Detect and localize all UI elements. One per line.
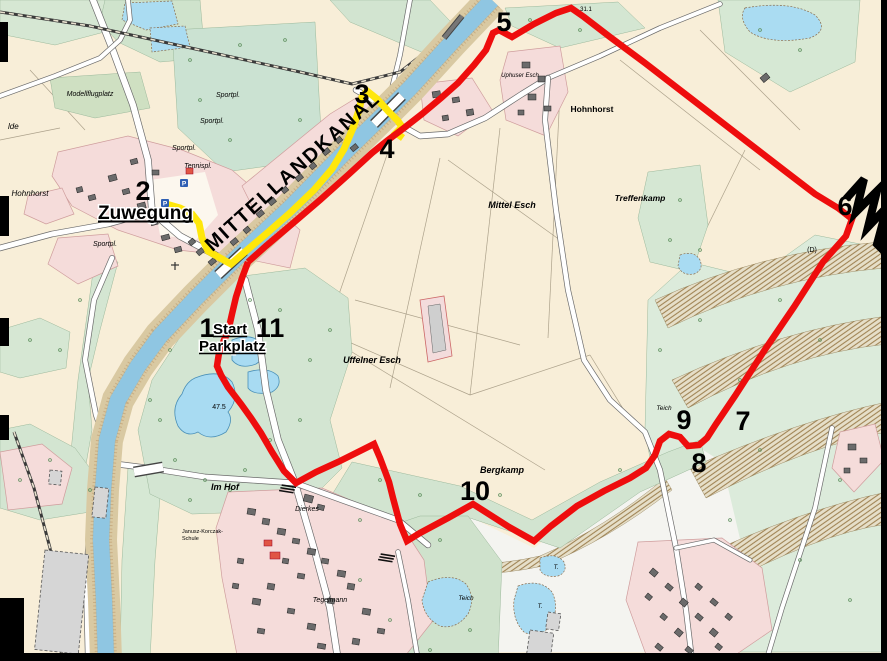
building — [538, 76, 545, 82]
industrial-building — [49, 470, 62, 485]
place-label: Sportpl. — [216, 92, 240, 99]
map-edge-bar — [0, 415, 9, 440]
place-label: Hohnhorst — [571, 104, 614, 114]
building — [252, 598, 261, 605]
place-label: Tegelmann — [313, 597, 347, 604]
annotation-start: Start — [213, 321, 247, 338]
building — [262, 518, 270, 525]
building — [257, 628, 265, 634]
waypoint-label-3: 3 — [354, 79, 369, 109]
waypoint-label-10: 10 — [460, 476, 490, 506]
building — [267, 583, 275, 590]
place-label: Sportpl. — [200, 118, 224, 125]
building — [518, 110, 524, 115]
place-label: Tennispl. — [184, 163, 212, 170]
building — [544, 106, 551, 111]
place-label: Janusz-Korczak- — [182, 529, 223, 535]
place-label: Schule — [182, 536, 199, 542]
place-label: Treffenkamp — [615, 193, 666, 203]
building — [352, 638, 360, 645]
building — [232, 583, 239, 589]
waypoint-label-8: 8 — [691, 448, 706, 478]
bridge — [134, 467, 163, 472]
waypoint-label-5: 5 — [496, 7, 511, 37]
building — [321, 558, 329, 564]
building — [848, 444, 856, 450]
topo-map: PPModellflugplatzSportpl.Sportpl.Sportpl… — [0, 0, 887, 661]
public-building — [270, 552, 280, 559]
building — [347, 583, 355, 590]
place-label: T. — [538, 604, 543, 610]
place-label: Im Hof — [211, 482, 240, 492]
place-label: Mittel Esch — [488, 200, 536, 210]
public-building — [264, 540, 272, 546]
svg-text:P: P — [182, 181, 187, 188]
building — [237, 558, 244, 564]
waypoint-label-7: 7 — [735, 406, 750, 436]
building — [466, 109, 474, 116]
building — [277, 528, 286, 535]
map-edge-bar — [0, 318, 9, 346]
place-label: Uphuser Esch — [501, 73, 539, 79]
map-frame: PPModellflugplatzSportpl.Sportpl.Sportpl… — [0, 0, 887, 661]
place-label: T. — [554, 565, 559, 571]
green-area — [0, 318, 70, 378]
building — [297, 573, 305, 579]
map-edge-bar — [0, 196, 9, 236]
parking-icon: P — [180, 179, 188, 188]
waypoint-label-6: 6 — [837, 191, 852, 221]
waypoint-label-11: 11 — [256, 313, 285, 343]
place-label: 31.1 — [580, 7, 592, 13]
building — [287, 608, 295, 614]
building — [860, 458, 867, 463]
building — [317, 643, 326, 649]
place-label: lde — [8, 122, 19, 131]
building — [292, 538, 300, 544]
waypoint-label-1: 1 — [199, 313, 214, 343]
place-label: (D) — [807, 247, 817, 254]
building — [452, 97, 460, 103]
building — [377, 628, 385, 634]
building — [442, 115, 449, 121]
green-area — [638, 165, 708, 272]
building — [152, 170, 159, 175]
building — [247, 508, 256, 515]
place-label: Sportpl. — [93, 241, 117, 248]
building — [528, 94, 536, 100]
building — [522, 62, 530, 68]
place-label: Teich — [458, 595, 474, 602]
waypoint-label-9: 9 — [676, 405, 691, 435]
map-edge-bar — [881, 0, 887, 661]
industrial-building — [546, 612, 561, 631]
map-edge-bar — [0, 653, 887, 661]
building — [844, 468, 850, 473]
map-edge-bar — [0, 22, 8, 62]
building — [337, 570, 346, 577]
place-label: Dierkes — [295, 506, 319, 513]
place-label: Bergkamp — [480, 465, 525, 475]
place-label: Teich — [656, 405, 672, 412]
building — [282, 558, 289, 564]
building — [307, 623, 316, 630]
place-label: 47.5 — [212, 404, 226, 411]
place-label: Uffelner Esch — [343, 355, 401, 365]
building — [362, 608, 371, 615]
place-label: Modellflugplatz — [67, 91, 114, 98]
place-label: Hohnhorst — [12, 189, 50, 198]
map-edge-bar — [0, 598, 24, 654]
building — [307, 548, 316, 555]
waypoint-label-4: 4 — [379, 134, 394, 164]
waypoint-label-2: 2 — [135, 176, 150, 206]
place-label: Sportpl. — [172, 145, 196, 152]
